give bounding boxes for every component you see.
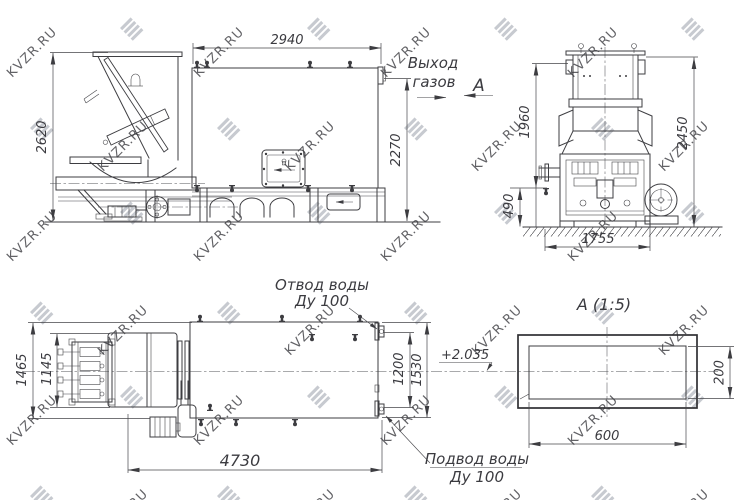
dim-1145: 1145 [40, 352, 55, 385]
dim-490: 490 [502, 194, 517, 219]
elevation-mark: +2.035 [441, 348, 489, 363]
water-inlet-label-line1: Подвод воды [425, 450, 529, 468]
drawing-canvas: KVZR.RU KVZR.RU [0, 0, 750, 500]
water-outlet-label-line2: Ду 100 [294, 292, 349, 310]
gas-outlet-label-line2: газов [412, 73, 455, 91]
water-inlet-label-line2: Ду 100 [449, 468, 504, 486]
dim-1960: 1960 [518, 105, 533, 138]
ground-hatch [523, 228, 721, 237]
view-direction-letter: А [472, 76, 485, 96]
dim-1465: 1465 [15, 353, 30, 386]
section-title: А (1:5) [576, 295, 631, 314]
dim-4730: 4730 [220, 451, 261, 470]
dim-1530: 1530 [410, 353, 425, 386]
gas-outlet-label-line1: Выход [408, 54, 459, 72]
dim-2940: 2940 [270, 33, 303, 48]
dim-2450: 2450 [676, 116, 691, 149]
dim-600: 600 [595, 429, 620, 444]
dim-1200: 1200 [392, 352, 407, 385]
technical-drawing: KVZR.RU KVZR.RU [0, 0, 750, 500]
dim-2270: 2270 [389, 133, 404, 166]
dim-2620: 2620 [35, 120, 50, 153]
dim-200: 200 [713, 360, 728, 385]
dim-1755: 1755 [581, 232, 614, 247]
